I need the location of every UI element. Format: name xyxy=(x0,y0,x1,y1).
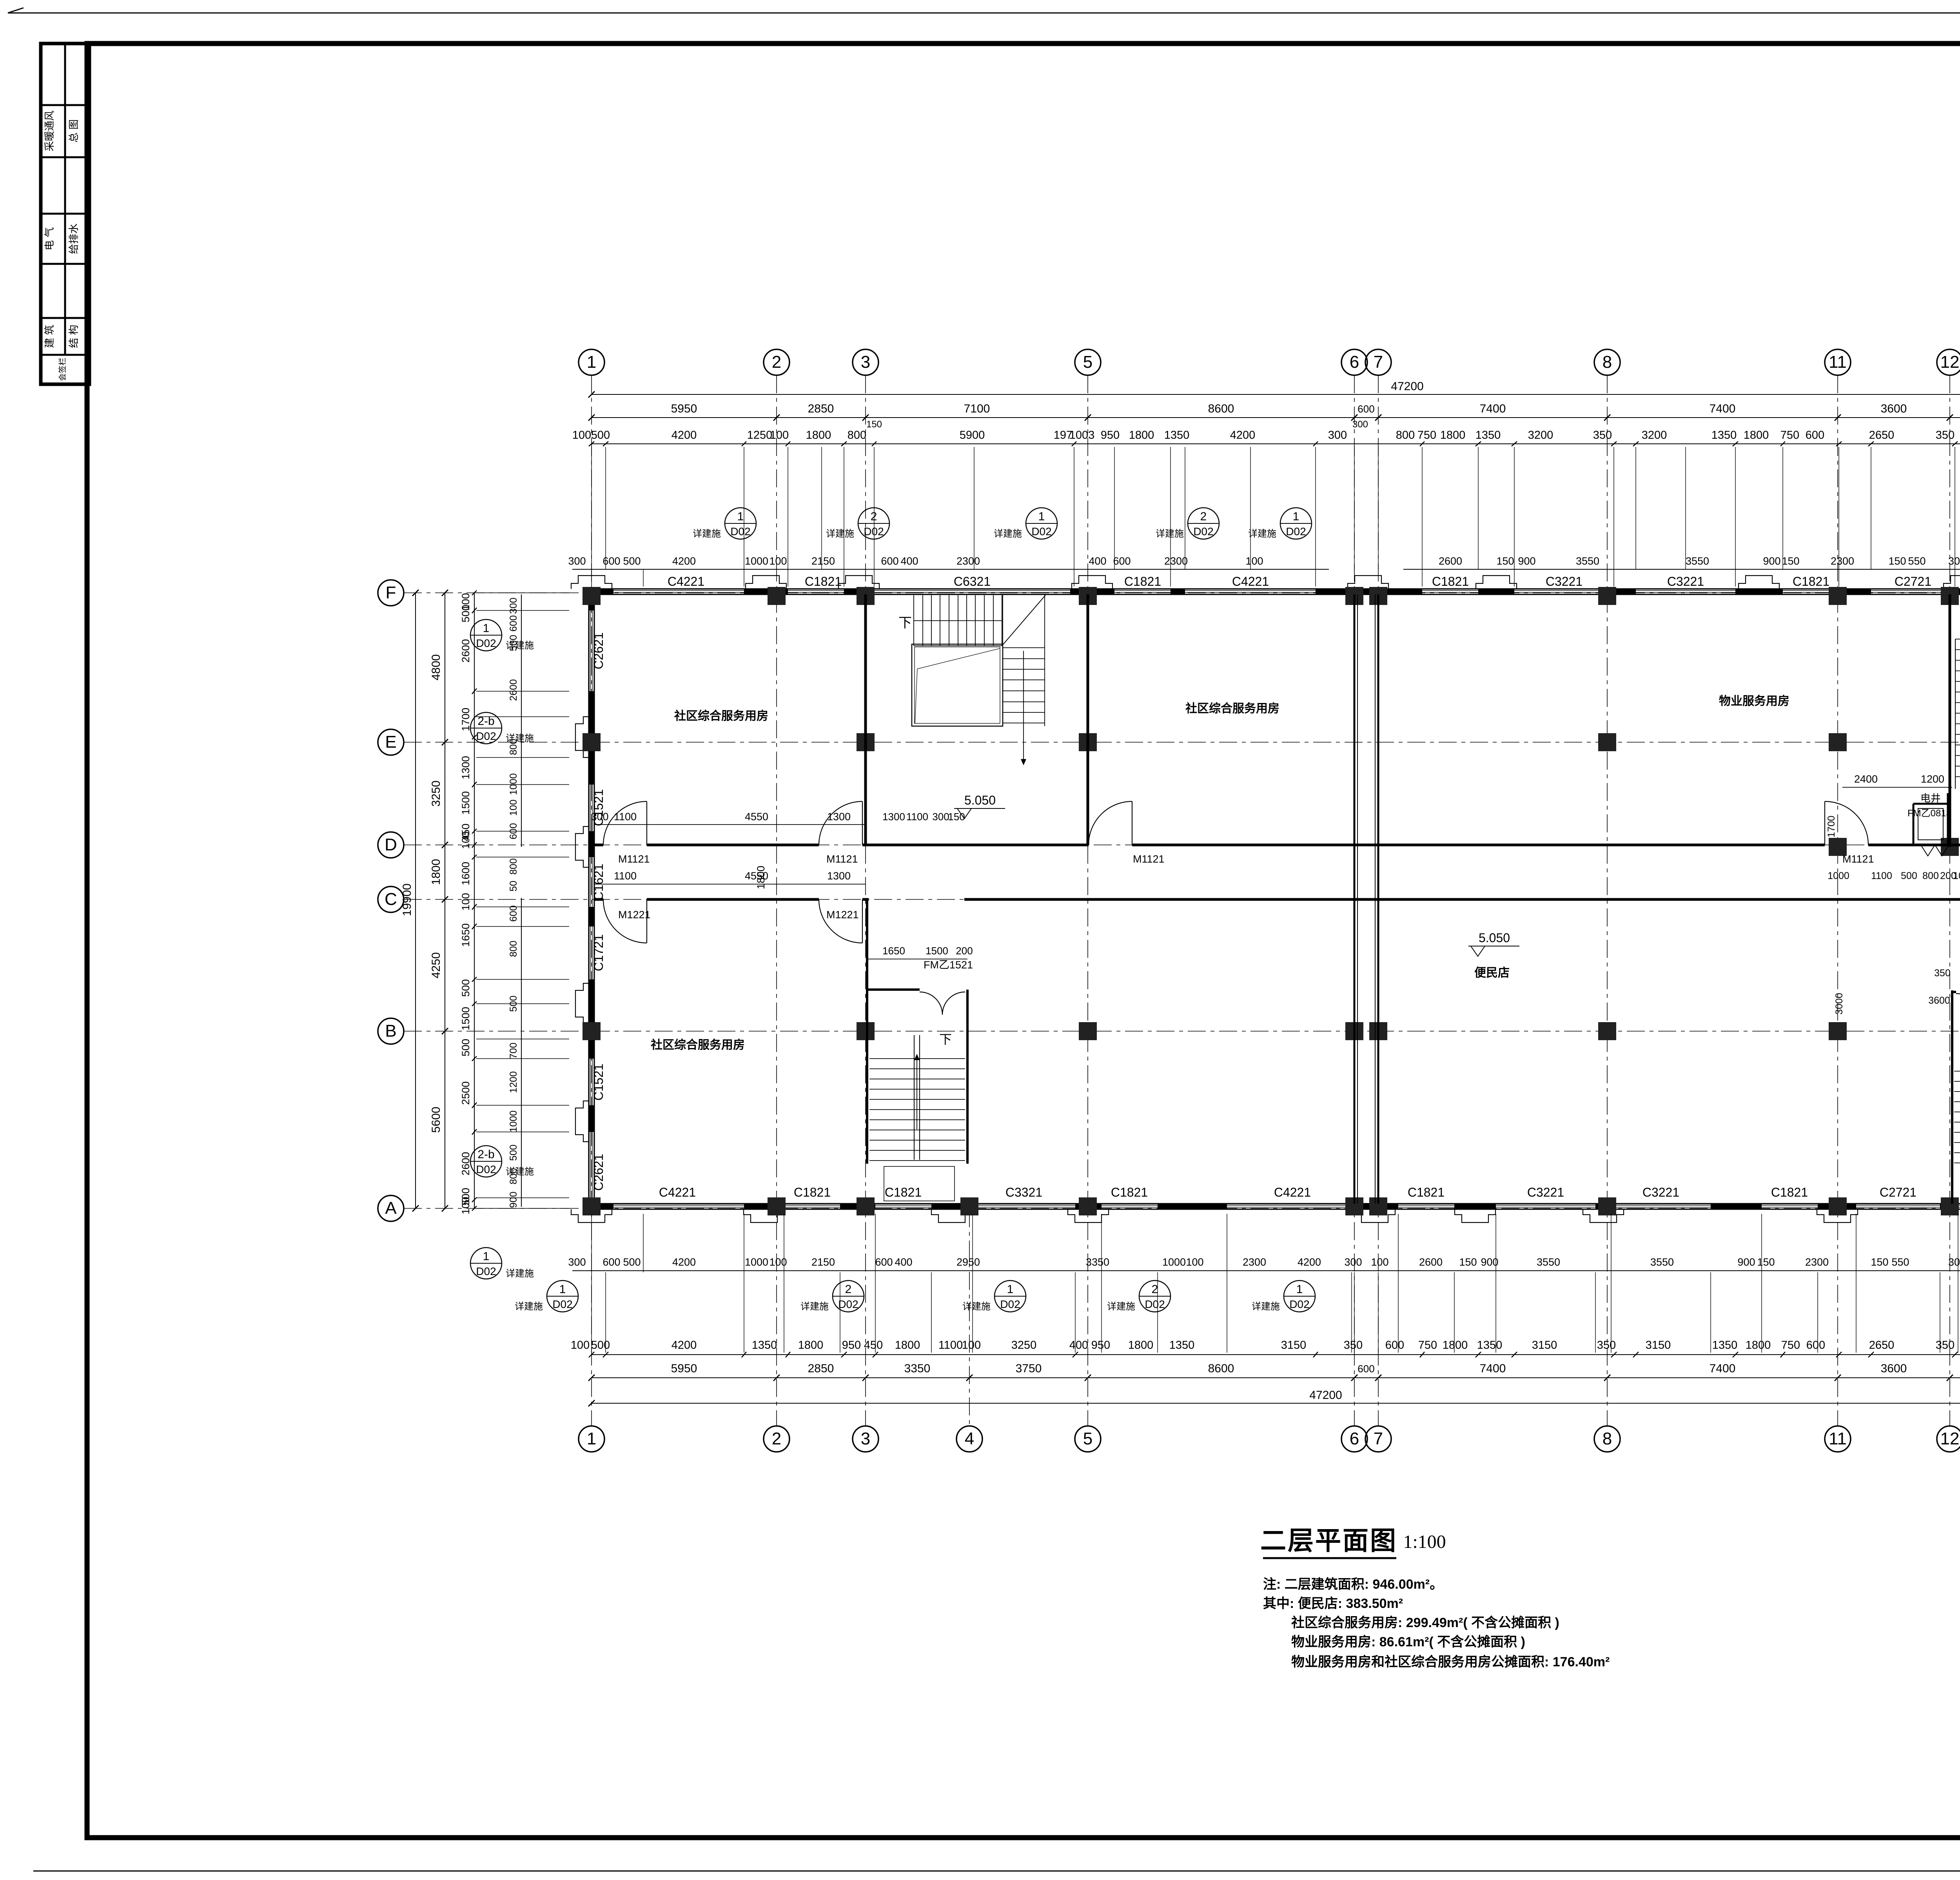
svg-text:D02: D02 xyxy=(1000,1298,1020,1310)
svg-text:D02: D02 xyxy=(552,1298,572,1310)
svg-text:1700: 1700 xyxy=(1826,816,1837,837)
svg-text:600: 600 xyxy=(508,615,519,632)
svg-text:C4221: C4221 xyxy=(668,574,704,589)
svg-text:3600: 3600 xyxy=(1881,1362,1907,1375)
svg-text:2-b: 2-b xyxy=(477,1148,494,1161)
svg-text:1200: 1200 xyxy=(1921,773,1944,785)
svg-text:二层平面图: 二层平面图 xyxy=(1260,1526,1397,1555)
svg-text:1100: 1100 xyxy=(938,1339,963,1351)
svg-text:1800: 1800 xyxy=(755,866,767,889)
svg-text:2850: 2850 xyxy=(808,1362,834,1375)
svg-text:900: 900 xyxy=(1737,1256,1755,1268)
svg-text:下: 下 xyxy=(898,616,912,630)
svg-text:C1821: C1821 xyxy=(1124,574,1161,589)
svg-text:1800: 1800 xyxy=(1443,1339,1468,1351)
svg-text:详建施: 详建施 xyxy=(506,640,534,651)
svg-text:1000: 1000 xyxy=(745,1256,768,1268)
svg-text:100: 100 xyxy=(572,429,591,441)
svg-text:500: 500 xyxy=(460,605,472,622)
svg-text:D02: D02 xyxy=(838,1298,858,1310)
svg-text:900: 900 xyxy=(508,1192,519,1208)
svg-text:750: 750 xyxy=(1780,429,1799,441)
svg-text:150: 150 xyxy=(1871,1256,1888,1268)
svg-text:物业服务用房: 物业服务用房 xyxy=(1719,695,1789,708)
svg-text:1500: 1500 xyxy=(926,945,948,957)
svg-text:3550: 3550 xyxy=(1686,555,1709,567)
svg-text:4250: 4250 xyxy=(430,952,443,979)
svg-text:2150: 2150 xyxy=(811,555,835,567)
svg-text:FM乙0818: FM乙0818 xyxy=(1907,808,1951,819)
svg-text:1100: 1100 xyxy=(614,870,637,882)
svg-text:150: 150 xyxy=(1888,555,1906,567)
svg-text:便民店: 便民店 xyxy=(1474,966,1510,979)
svg-text:400: 400 xyxy=(1089,555,1106,567)
svg-text:8600: 8600 xyxy=(1208,1362,1234,1375)
svg-text:M1221: M1221 xyxy=(826,909,859,921)
svg-text:D02: D02 xyxy=(1193,525,1213,538)
svg-text:450: 450 xyxy=(864,1339,883,1351)
svg-text:100: 100 xyxy=(460,893,472,910)
svg-text:47200: 47200 xyxy=(1391,380,1423,393)
svg-text:4200: 4200 xyxy=(1298,1256,1321,1268)
svg-text:12: 12 xyxy=(1940,1429,1960,1448)
svg-text:1700: 1700 xyxy=(460,708,472,731)
svg-text:电 气: 电 气 xyxy=(44,227,55,250)
svg-text:11: 11 xyxy=(1829,352,1847,372)
svg-text:2300: 2300 xyxy=(1243,1256,1266,1268)
svg-text:100: 100 xyxy=(460,1197,472,1214)
svg-text:C2721: C2721 xyxy=(1895,574,1931,589)
svg-text:1350: 1350 xyxy=(1475,429,1501,441)
svg-text:800: 800 xyxy=(1922,870,1939,881)
svg-text:社区综合服务用房: 299.49m²( 不含公摊面积 ): 社区综合服务用房: 299.49m²( 不含公摊面积 ) xyxy=(1291,1615,1559,1630)
svg-text:C1821: C1821 xyxy=(1432,574,1469,589)
svg-text:1: 1 xyxy=(559,1283,566,1296)
svg-text:1350: 1350 xyxy=(1477,1339,1503,1351)
svg-text:C: C xyxy=(385,890,397,909)
svg-text:下: 下 xyxy=(939,1032,952,1046)
svg-text:100: 100 xyxy=(508,799,519,816)
svg-text:3200: 3200 xyxy=(1528,429,1553,441)
svg-text:2850: 2850 xyxy=(808,402,834,415)
svg-text:给排水: 给排水 xyxy=(68,223,80,254)
svg-text:C1521: C1521 xyxy=(592,1064,606,1101)
svg-text:2500: 2500 xyxy=(460,1081,472,1105)
svg-text:7400: 7400 xyxy=(1480,402,1506,415)
svg-text:C1821: C1821 xyxy=(805,574,842,589)
svg-text:300: 300 xyxy=(1352,419,1368,430)
svg-text:350: 350 xyxy=(1934,968,1951,979)
svg-text:详建施: 详建施 xyxy=(800,1301,829,1312)
svg-text:1100: 1100 xyxy=(614,811,637,823)
svg-text:300: 300 xyxy=(568,1256,586,1268)
svg-text:7400: 7400 xyxy=(1710,1362,1736,1375)
svg-text:600: 600 xyxy=(1806,429,1824,441)
svg-text:1000: 1000 xyxy=(508,773,519,795)
svg-text:50: 50 xyxy=(508,881,519,892)
svg-text:350: 350 xyxy=(1936,1339,1955,1351)
svg-text:300: 300 xyxy=(508,598,519,614)
svg-text:600: 600 xyxy=(875,1256,893,1268)
svg-text:5: 5 xyxy=(1083,1429,1093,1448)
svg-text:800: 800 xyxy=(508,941,519,957)
svg-text:1003: 1003 xyxy=(1069,429,1095,441)
svg-text:1000: 1000 xyxy=(1953,870,1960,881)
svg-text:C2621: C2621 xyxy=(592,1154,606,1191)
svg-text:D02: D02 xyxy=(476,1265,496,1277)
svg-text:3350: 3350 xyxy=(1086,1256,1109,1268)
svg-text:4200: 4200 xyxy=(671,1339,697,1351)
svg-text:电井: 电井 xyxy=(1920,792,1941,804)
svg-text:C4221: C4221 xyxy=(1232,574,1269,589)
svg-text:3050: 3050 xyxy=(1948,555,1960,567)
svg-text:1800: 1800 xyxy=(1440,429,1466,441)
svg-text:900: 900 xyxy=(1518,555,1535,567)
svg-text:3150: 3150 xyxy=(1646,1339,1671,1351)
svg-text:4200: 4200 xyxy=(1230,429,1256,441)
svg-text:1600: 1600 xyxy=(460,862,472,885)
svg-text:详建施: 详建施 xyxy=(506,1268,534,1279)
svg-text:1300: 1300 xyxy=(460,756,472,779)
svg-text:600: 600 xyxy=(1385,1339,1404,1351)
svg-text:详建施: 详建施 xyxy=(994,529,1022,539)
svg-text:950: 950 xyxy=(1101,429,1120,441)
svg-text:3: 3 xyxy=(861,352,870,372)
svg-text:1800: 1800 xyxy=(806,429,831,441)
svg-text:C4221: C4221 xyxy=(1274,1185,1311,1199)
svg-text:3000: 3000 xyxy=(1834,993,1845,1015)
svg-text:1: 1 xyxy=(1038,510,1045,523)
svg-text:1300: 1300 xyxy=(882,811,905,823)
svg-text:150: 150 xyxy=(1459,1256,1477,1268)
svg-text:C3221: C3221 xyxy=(1667,574,1704,589)
svg-text:C1821: C1821 xyxy=(794,1185,831,1199)
svg-text:3550: 3550 xyxy=(1537,1256,1560,1268)
svg-text:M1121: M1121 xyxy=(1133,853,1165,865)
svg-text:C3221: C3221 xyxy=(1642,1185,1679,1199)
svg-text:600: 600 xyxy=(1357,1363,1374,1375)
svg-text:100: 100 xyxy=(1245,555,1263,567)
svg-text:4800: 4800 xyxy=(430,654,443,681)
svg-text:3250: 3250 xyxy=(430,781,443,807)
svg-text:500: 500 xyxy=(1901,870,1917,881)
svg-text:750: 750 xyxy=(1781,1339,1800,1351)
svg-text:1800: 1800 xyxy=(1746,1339,1771,1351)
svg-text:350: 350 xyxy=(1936,429,1955,441)
svg-text:150: 150 xyxy=(1496,555,1514,567)
svg-text:4: 4 xyxy=(965,1429,974,1448)
svg-text:600: 600 xyxy=(1113,555,1131,567)
svg-text:300: 300 xyxy=(932,811,949,823)
svg-text:500: 500 xyxy=(623,1256,641,1268)
svg-text:200: 200 xyxy=(956,945,973,957)
svg-text:7100: 7100 xyxy=(964,402,990,415)
svg-text:800: 800 xyxy=(1396,429,1415,441)
svg-text:1200: 1200 xyxy=(508,1071,519,1093)
svg-text:详建施: 详建施 xyxy=(506,733,534,744)
svg-text:600: 600 xyxy=(603,1256,620,1268)
svg-text:1500: 1500 xyxy=(460,791,472,815)
svg-text:8600: 8600 xyxy=(1208,402,1234,415)
svg-text:6: 6 xyxy=(1350,1429,1359,1448)
svg-text:950: 950 xyxy=(842,1339,861,1351)
svg-text:D02: D02 xyxy=(1289,1298,1309,1310)
svg-text:150: 150 xyxy=(1782,555,1799,567)
svg-text:750: 750 xyxy=(1418,1339,1437,1351)
svg-text:2: 2 xyxy=(772,352,781,372)
svg-text:3600: 3600 xyxy=(1881,402,1907,415)
svg-text:C1821: C1821 xyxy=(1771,1185,1808,1199)
svg-text:1800: 1800 xyxy=(798,1339,824,1351)
svg-text:2600: 2600 xyxy=(460,1152,472,1175)
svg-text:300: 300 xyxy=(1328,429,1347,441)
svg-text:1800: 1800 xyxy=(1744,429,1769,441)
svg-text:500: 500 xyxy=(460,1039,472,1056)
svg-text:详建施: 详建施 xyxy=(1248,529,1276,539)
svg-text:3150: 3150 xyxy=(1532,1339,1557,1351)
svg-text:社区综合服务用房: 社区综合服务用房 xyxy=(674,709,768,723)
svg-text:100: 100 xyxy=(1371,1256,1388,1268)
svg-text:5950: 5950 xyxy=(671,402,697,415)
svg-text:350: 350 xyxy=(1344,1339,1363,1351)
svg-text:1350: 1350 xyxy=(1164,429,1190,441)
svg-text:2300: 2300 xyxy=(956,555,980,567)
svg-text:600: 600 xyxy=(603,555,620,567)
svg-text:1300: 1300 xyxy=(827,870,851,882)
svg-text:1350: 1350 xyxy=(1169,1339,1195,1351)
svg-text:2150: 2150 xyxy=(811,1256,835,1268)
svg-text:1000: 1000 xyxy=(745,555,768,567)
svg-text:M1121: M1121 xyxy=(1842,853,1874,865)
svg-text:E: E xyxy=(385,732,396,752)
svg-text:D02: D02 xyxy=(476,637,496,649)
svg-text:2650: 2650 xyxy=(1869,1339,1895,1351)
svg-text:550: 550 xyxy=(1908,555,1926,567)
svg-text:C1721: C1721 xyxy=(592,934,606,971)
svg-text:FM乙1521: FM乙1521 xyxy=(924,959,973,971)
svg-text:100: 100 xyxy=(571,1339,590,1351)
svg-text:A: A xyxy=(385,1199,397,1218)
svg-text:D: D xyxy=(385,835,397,854)
svg-text:500: 500 xyxy=(508,1144,519,1161)
svg-text:500: 500 xyxy=(460,979,472,997)
svg-text:7: 7 xyxy=(1374,352,1383,372)
svg-text:350: 350 xyxy=(1597,1339,1616,1351)
svg-text:M1121: M1121 xyxy=(826,853,858,865)
svg-text:2300: 2300 xyxy=(1805,1256,1829,1268)
svg-text:C2721: C2721 xyxy=(1880,1185,1916,1199)
svg-text:300: 300 xyxy=(568,555,586,567)
svg-text:注: 二层建筑面积: 946.00m²。: 注: 二层建筑面积: 946.00m²。 xyxy=(1263,1577,1443,1592)
svg-text:1: 1 xyxy=(1007,1283,1014,1296)
svg-text:物业服务用房: 86.61m²( 不含公摊面积 ): 物业服务用房: 86.61m²( 不含公摊面积 ) xyxy=(1291,1635,1525,1649)
svg-text:3750: 3750 xyxy=(1016,1362,1042,1375)
svg-text:1800: 1800 xyxy=(1129,429,1154,441)
svg-text:900: 900 xyxy=(1763,555,1780,567)
svg-text:1500: 1500 xyxy=(460,1007,472,1030)
svg-text:100: 100 xyxy=(769,1256,787,1268)
svg-text:1000: 1000 xyxy=(508,1110,519,1132)
svg-text:F: F xyxy=(386,583,396,602)
svg-text:3550: 3550 xyxy=(1650,1256,1674,1268)
svg-text:C3221: C3221 xyxy=(1546,574,1583,589)
svg-text:12: 12 xyxy=(1940,352,1960,372)
svg-text:1: 1 xyxy=(483,622,490,635)
svg-text:1: 1 xyxy=(737,510,744,523)
svg-text:1650: 1650 xyxy=(460,923,472,947)
svg-text:C1821: C1821 xyxy=(1111,1185,1148,1199)
svg-text:2650: 2650 xyxy=(1869,429,1895,441)
svg-text:750: 750 xyxy=(1417,429,1436,441)
svg-text:3200: 3200 xyxy=(1642,429,1667,441)
svg-text:物业服务用房和社区综合服务用房公摊面积: 176.40m²: 物业服务用房和社区综合服务用房公摊面积: 176.40m² xyxy=(1291,1655,1610,1669)
svg-text:C1821: C1821 xyxy=(1408,1185,1445,1199)
svg-text:1000: 1000 xyxy=(1828,870,1849,881)
svg-text:2: 2 xyxy=(1152,1283,1158,1296)
svg-text:1350: 1350 xyxy=(1711,429,1737,441)
svg-text:5.050: 5.050 xyxy=(1479,931,1510,945)
svg-text:100: 100 xyxy=(770,429,789,441)
svg-text:5900: 5900 xyxy=(960,429,985,441)
svg-text:2600: 2600 xyxy=(1439,555,1462,567)
svg-text:其中: 便民店: 383.50m²: 其中: 便民店: 383.50m² xyxy=(1263,1596,1403,1611)
svg-text:3150: 3150 xyxy=(1281,1339,1307,1351)
svg-text:2: 2 xyxy=(871,510,877,523)
svg-text:2600: 2600 xyxy=(1419,1256,1443,1268)
svg-text:1: 1 xyxy=(587,1429,596,1448)
svg-text:1: 1 xyxy=(587,352,596,372)
svg-text:150: 150 xyxy=(948,811,965,823)
svg-text:1000: 1000 xyxy=(1162,1256,1186,1268)
svg-text:C2621: C2621 xyxy=(592,632,606,669)
svg-text:2950: 2950 xyxy=(956,1256,980,1268)
svg-text:3250: 3250 xyxy=(1011,1339,1037,1351)
svg-text:400: 400 xyxy=(1069,1339,1088,1351)
svg-text:C3221: C3221 xyxy=(1527,1185,1564,1199)
svg-text:1: 1 xyxy=(1293,510,1299,523)
svg-text:详建施: 详建施 xyxy=(1107,1301,1135,1312)
svg-text:C4221: C4221 xyxy=(659,1185,696,1199)
svg-text:100: 100 xyxy=(1186,1256,1203,1268)
svg-text:2400: 2400 xyxy=(1854,773,1878,785)
svg-text:300: 300 xyxy=(1344,1256,1362,1268)
svg-text:详建施: 详建施 xyxy=(962,1301,991,1312)
svg-text:350: 350 xyxy=(1593,429,1612,441)
svg-text:700: 700 xyxy=(508,1043,519,1059)
svg-text:M1221: M1221 xyxy=(618,909,651,921)
svg-text:会签栏: 会签栏 xyxy=(58,358,67,381)
svg-text:2300: 2300 xyxy=(1164,555,1188,567)
svg-text:2: 2 xyxy=(845,1283,852,1296)
svg-text:950: 950 xyxy=(1091,1339,1110,1351)
svg-text:1650: 1650 xyxy=(882,945,905,957)
svg-text:11: 11 xyxy=(1829,1429,1847,1448)
svg-text:详建施: 详建施 xyxy=(1252,1301,1280,1312)
svg-text:47200: 47200 xyxy=(1309,1389,1342,1402)
svg-text:详建施: 详建施 xyxy=(515,1301,543,1312)
svg-text:C1821: C1821 xyxy=(1793,574,1829,589)
svg-text:详建施: 详建施 xyxy=(1156,529,1184,539)
svg-text:1800: 1800 xyxy=(430,859,443,885)
svg-text:社区综合服务用房: 社区综合服务用房 xyxy=(651,1038,745,1052)
svg-text:8: 8 xyxy=(1602,352,1612,372)
svg-text:4200: 4200 xyxy=(671,429,697,441)
svg-text:600: 600 xyxy=(508,905,519,922)
svg-text:1: 1 xyxy=(483,1250,490,1263)
svg-text:1250: 1250 xyxy=(747,429,773,441)
svg-text:D02: D02 xyxy=(730,525,750,538)
svg-text:4550: 4550 xyxy=(745,811,768,823)
svg-text:M1121: M1121 xyxy=(618,853,650,865)
svg-text:800: 800 xyxy=(848,429,866,441)
svg-text:6: 6 xyxy=(1350,352,1359,372)
svg-text:详建施: 详建施 xyxy=(826,529,854,539)
svg-text:19900: 19900 xyxy=(401,883,414,916)
svg-text:1: 1 xyxy=(1296,1283,1303,1296)
svg-text:4200: 4200 xyxy=(672,555,696,567)
svg-text:2600: 2600 xyxy=(460,639,472,663)
svg-text:1350: 1350 xyxy=(1712,1339,1738,1351)
svg-text:500: 500 xyxy=(623,555,641,567)
svg-text:100: 100 xyxy=(460,831,472,849)
svg-text:建 筑: 建 筑 xyxy=(44,325,55,348)
svg-text:详建施: 详建施 xyxy=(506,1166,534,1177)
svg-text:600: 600 xyxy=(881,555,898,567)
svg-text:800: 800 xyxy=(508,858,519,875)
svg-text:C6321: C6321 xyxy=(954,574,991,589)
svg-text:C1821: C1821 xyxy=(885,1185,922,1199)
svg-text:3350: 3350 xyxy=(904,1362,931,1375)
svg-text:3: 3 xyxy=(861,1429,870,1448)
svg-text:5600: 5600 xyxy=(430,1107,443,1133)
svg-text:D02: D02 xyxy=(864,525,884,538)
svg-text:500: 500 xyxy=(591,429,610,441)
svg-text:1:100: 1:100 xyxy=(1403,1531,1446,1552)
svg-text:C1621: C1621 xyxy=(592,864,606,901)
svg-text:400: 400 xyxy=(895,1256,912,1268)
svg-text:550: 550 xyxy=(1891,1256,1909,1268)
svg-text:3600: 3600 xyxy=(1928,995,1950,1006)
svg-text:5.050: 5.050 xyxy=(964,793,996,807)
svg-text:B: B xyxy=(385,1021,396,1041)
svg-text:总 图: 总 图 xyxy=(68,119,80,142)
svg-text:1800: 1800 xyxy=(1128,1339,1154,1351)
svg-text:2: 2 xyxy=(772,1429,781,1448)
svg-text:1300: 1300 xyxy=(827,811,851,823)
svg-text:4200: 4200 xyxy=(672,1256,696,1268)
svg-text:社区综合服务用房: 社区综合服务用房 xyxy=(1185,702,1279,715)
svg-text:5950: 5950 xyxy=(671,1362,697,1375)
svg-text:300: 300 xyxy=(591,811,608,823)
svg-text:100: 100 xyxy=(962,1339,981,1351)
svg-text:D02: D02 xyxy=(476,1163,496,1175)
svg-text:150: 150 xyxy=(866,419,882,430)
svg-text:600: 600 xyxy=(1806,1339,1825,1351)
svg-text:1100: 1100 xyxy=(906,811,928,823)
svg-text:7400: 7400 xyxy=(1710,402,1736,415)
svg-text:D02: D02 xyxy=(1286,525,1306,538)
svg-text:D02: D02 xyxy=(1145,1298,1165,1310)
svg-text:D02: D02 xyxy=(1031,525,1051,538)
svg-text:1100: 1100 xyxy=(1871,870,1892,881)
svg-text:1800: 1800 xyxy=(895,1339,920,1351)
svg-text:7: 7 xyxy=(1374,1429,1383,1448)
svg-text:3550: 3550 xyxy=(1576,555,1599,567)
svg-text:2: 2 xyxy=(1200,510,1207,523)
svg-text:1350: 1350 xyxy=(752,1339,777,1351)
svg-text:8: 8 xyxy=(1602,1429,1612,1448)
svg-text:详建施: 详建施 xyxy=(693,529,721,539)
